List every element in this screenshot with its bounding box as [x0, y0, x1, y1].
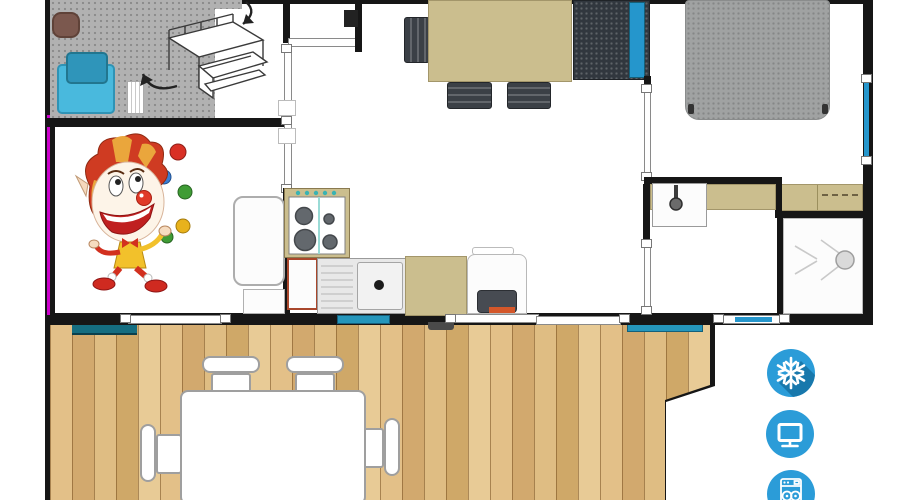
dresser-divider	[817, 185, 818, 210]
deck-chair-back	[286, 356, 344, 373]
faucet-icon	[668, 185, 684, 213]
teal-window	[337, 315, 390, 324]
fridge	[233, 196, 285, 286]
wall-bath-left	[643, 184, 650, 246]
shower-spray-icon	[783, 218, 863, 314]
bunk-bed-pillow	[66, 52, 108, 84]
tv-icon	[766, 410, 814, 458]
dishwasher-icon	[767, 470, 815, 500]
wall-mounted-box	[344, 10, 358, 27]
armchair	[52, 12, 80, 38]
bed-foot	[688, 104, 694, 114]
deck-table	[180, 390, 366, 500]
wall-kids-right	[283, 0, 290, 43]
magenta-marker	[47, 115, 50, 315]
sink-drain	[374, 280, 384, 290]
bed-foot	[822, 104, 828, 114]
door-jamb	[281, 116, 292, 125]
partition-handle	[278, 100, 296, 116]
wall-kids-bottom	[45, 118, 285, 127]
deck-chair-back	[202, 356, 260, 373]
deck-chair-back	[140, 424, 156, 482]
door-jamb	[445, 314, 456, 323]
kitchen-counter	[405, 256, 467, 316]
dining-chair	[404, 17, 430, 63]
door-jamb	[281, 44, 292, 53]
door-threshold	[428, 322, 454, 330]
window-jamb	[220, 314, 231, 323]
deck-step-right	[627, 324, 703, 332]
wardrobe-sliding-door	[629, 2, 645, 78]
double-bed	[685, 0, 830, 120]
side-window-glass	[864, 83, 869, 156]
window-jamb	[861, 74, 872, 83]
bathroom-door	[644, 246, 651, 312]
door-jamb	[619, 314, 630, 323]
window-jamb	[713, 314, 724, 323]
bedroom-door	[644, 92, 651, 174]
sliding-door-panel	[536, 316, 621, 325]
right-window-glass	[735, 317, 772, 322]
deck-chair-back	[384, 418, 400, 476]
dining-chair	[507, 82, 551, 109]
sliding-door-panel	[453, 314, 539, 323]
gas-hob	[284, 188, 350, 258]
kids-room-door	[288, 38, 357, 47]
deck-step-left	[72, 325, 137, 335]
floor-plan-canvas	[0, 0, 900, 500]
snowflake-icon	[767, 349, 815, 397]
bedroom-dresser	[780, 184, 863, 211]
window-jamb	[120, 314, 131, 323]
door-jamb	[641, 84, 652, 93]
dining-chair	[447, 82, 492, 109]
partition-handle	[278, 128, 296, 144]
dresser-handle-dashes	[822, 194, 858, 196]
base-cabinet	[243, 289, 285, 314]
bunk-bed-sketch	[125, 0, 275, 112]
sink-drainer	[321, 264, 353, 309]
oven	[287, 258, 318, 310]
left-window	[128, 315, 222, 324]
door-jamb	[641, 239, 652, 248]
dining-table	[428, 0, 572, 82]
clown-illustration	[72, 128, 197, 296]
window-jamb	[861, 156, 872, 165]
wall-bath-mid	[777, 211, 873, 218]
heater-orange-bar	[489, 307, 515, 313]
door-jamb	[641, 306, 652, 315]
window-jamb	[779, 314, 790, 323]
deck-chair-seat	[156, 434, 182, 474]
